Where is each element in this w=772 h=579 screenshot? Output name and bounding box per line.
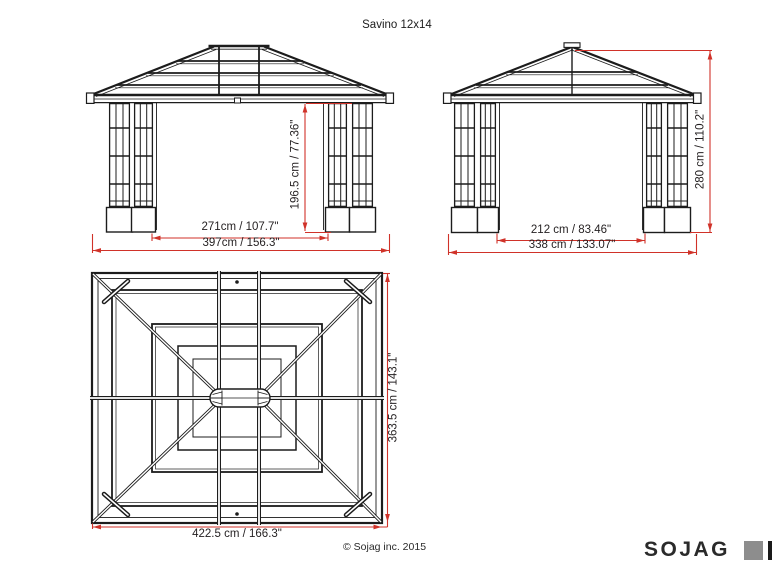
side-total-depth-dimension: 338 cm / 133.07" — [492, 239, 652, 252]
side-total-height-dimension: 280 cm / 110.2" — [695, 90, 708, 210]
side-elevation-drawing — [444, 43, 702, 233]
front-elevation-drawing — [87, 46, 394, 232]
front-total-width-dimension: 397cm / 156.3" — [161, 237, 321, 250]
front-post-height-dimension: 196.5 cm / 77.36" — [290, 105, 303, 225]
sojag-logo-wordmark: SOJAG — [644, 538, 730, 562]
plan-roof-width-dimension: 422.5 cm / 166.3" — [157, 528, 317, 541]
drawing-title: Savino 12x14 — [327, 19, 467, 31]
plan-roof-depth-dimension: 363.5 cm / 143.1" — [388, 338, 401, 458]
side-opening-depth-dimension: 212 cm / 83.46" — [491, 224, 651, 237]
sojag-logo-black-square-icon — [768, 541, 772, 560]
gazebo-spec-sheet: Savino 12x14 271cm / 107.7" 397cm / 156.… — [0, 0, 772, 579]
roof-plan-drawing — [90, 271, 384, 525]
copyright-notice: © Sojag inc. 2015 — [343, 541, 426, 553]
sojag-logo-gray-square-icon — [744, 541, 763, 560]
technical-drawing — [0, 0, 772, 579]
